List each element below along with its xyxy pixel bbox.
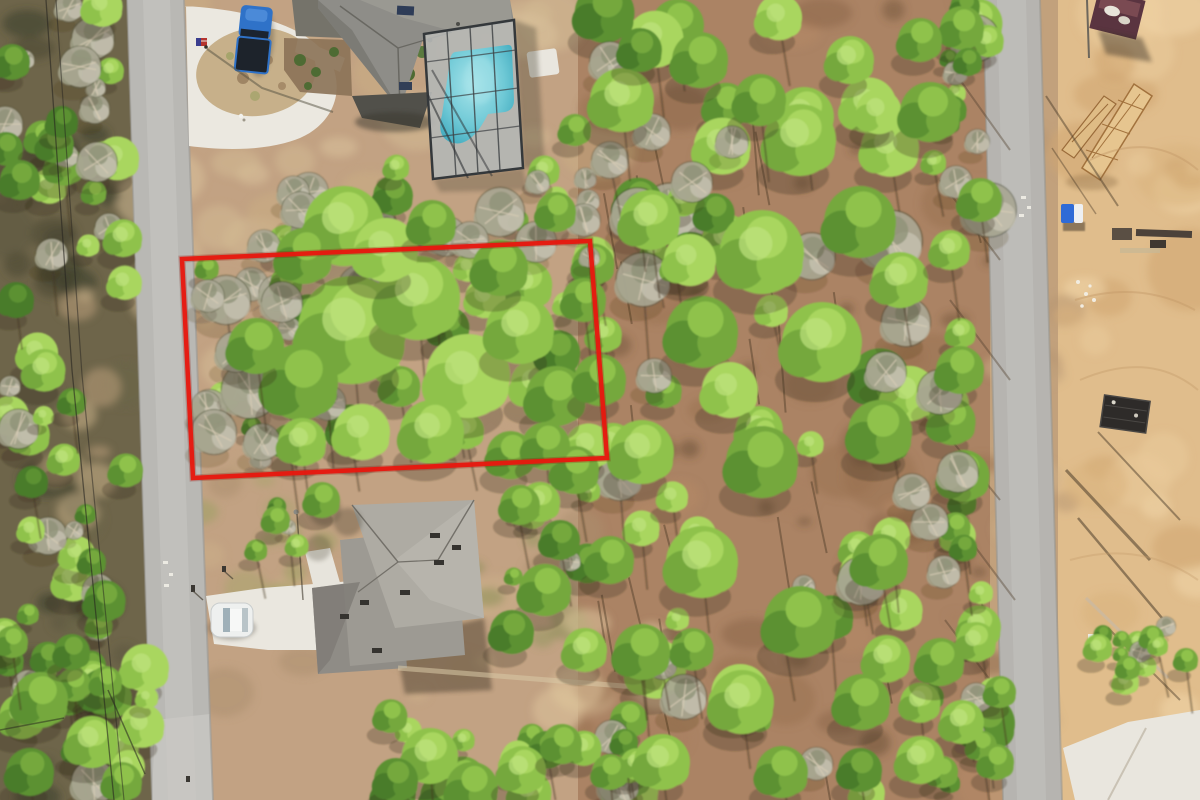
canopy-highlight bbox=[767, 4, 785, 22]
tree-shadow bbox=[498, 585, 516, 595]
canopy-highlight bbox=[457, 733, 466, 742]
tree-canopy bbox=[462, 766, 488, 792]
tree-canopy bbox=[603, 757, 621, 775]
tree-canopy bbox=[918, 87, 948, 117]
tree-canopy bbox=[706, 196, 726, 216]
canopy-highlight bbox=[501, 310, 528, 337]
tree-canopy bbox=[552, 523, 572, 543]
tree-canopy bbox=[569, 116, 585, 132]
canopy-highlight bbox=[885, 263, 907, 285]
tree-canopy bbox=[869, 538, 897, 566]
terrain-patch bbox=[1064, 277, 1106, 299]
tree-canopy bbox=[544, 371, 574, 401]
tree-canopy bbox=[119, 456, 136, 473]
island-grass bbox=[226, 52, 234, 60]
debris bbox=[1088, 284, 1091, 287]
tree-canopy bbox=[315, 485, 333, 503]
tree-canopy bbox=[12, 163, 32, 183]
canopy-highlight bbox=[724, 683, 750, 709]
canopy-highlight bbox=[509, 756, 528, 775]
tree-canopy bbox=[851, 678, 879, 706]
skylight bbox=[397, 6, 414, 16]
canopy-highlight bbox=[33, 358, 50, 375]
shrub bbox=[311, 67, 321, 77]
roof-vent bbox=[360, 600, 369, 605]
car-windshield bbox=[223, 608, 230, 632]
tree-canopy bbox=[950, 350, 974, 374]
road-paint-mark bbox=[1019, 214, 1024, 217]
pool-highlight bbox=[464, 56, 496, 104]
car-rear-window bbox=[242, 608, 248, 632]
tree-shadow-on-roof bbox=[305, 535, 331, 561]
tree-canopy bbox=[958, 537, 971, 550]
tree-canopy bbox=[384, 702, 401, 719]
terrain-patch bbox=[882, 0, 905, 21]
debris bbox=[1092, 298, 1096, 302]
skylight bbox=[399, 82, 412, 90]
tree-canopy bbox=[994, 678, 1010, 694]
canopy-highlight bbox=[953, 324, 965, 336]
shrub bbox=[304, 82, 312, 90]
canopy-highlight bbox=[632, 518, 646, 532]
roof-vent bbox=[434, 560, 444, 565]
tree-canopy bbox=[689, 36, 717, 64]
tree-canopy bbox=[9, 285, 27, 303]
tree-canopy bbox=[510, 569, 519, 578]
flagpole bbox=[204, 45, 208, 49]
road-paint-mark bbox=[1027, 206, 1031, 209]
tree-canopy bbox=[688, 301, 724, 337]
canopy-highlight bbox=[103, 63, 114, 74]
canopy-highlight bbox=[78, 726, 99, 747]
roof-vent bbox=[400, 590, 410, 595]
tree-canopy bbox=[911, 21, 933, 43]
tree-canopy bbox=[512, 488, 532, 508]
porta-body bbox=[1061, 204, 1074, 223]
terrain-patch bbox=[1127, 153, 1153, 177]
canopy-highlight bbox=[289, 428, 308, 447]
terrain-patch bbox=[3, 10, 51, 38]
road-paint-mark bbox=[1021, 196, 1026, 199]
canopy-highlight bbox=[682, 540, 711, 569]
tree-canopy bbox=[748, 431, 784, 467]
shrub bbox=[329, 47, 339, 57]
lumber-stack bbox=[1150, 240, 1166, 248]
tree-shadow bbox=[1141, 655, 1161, 666]
porta-shadow bbox=[1063, 222, 1085, 231]
truck-bed bbox=[235, 36, 271, 73]
terrain-patch bbox=[1054, 306, 1081, 325]
tree-canopy bbox=[86, 550, 100, 564]
tree-canopy bbox=[684, 631, 705, 652]
canopy-highlight bbox=[647, 745, 669, 767]
dead-brush bbox=[577, 206, 593, 222]
tree-canopy bbox=[619, 731, 633, 745]
tree-canopy bbox=[114, 765, 134, 785]
car-roof bbox=[230, 609, 242, 631]
pool-enclosure bbox=[424, 20, 545, 192]
tree-canopy bbox=[1181, 650, 1193, 662]
terrain-patch bbox=[320, 137, 358, 158]
tree-canopy bbox=[1118, 632, 1126, 640]
tree-canopy bbox=[5, 47, 23, 65]
tree-canopy bbox=[548, 195, 568, 215]
lumber-stack bbox=[1112, 228, 1132, 240]
canopy-highlight bbox=[445, 351, 479, 385]
mailbox bbox=[191, 585, 195, 592]
canopy-highlight bbox=[322, 202, 354, 234]
canopy-highlight bbox=[414, 413, 440, 439]
shrub bbox=[294, 54, 306, 66]
canopy-highlight bbox=[800, 318, 832, 350]
tree-canopy bbox=[1123, 658, 1135, 670]
terrain-patch bbox=[4, 252, 31, 277]
tree-canopy bbox=[786, 591, 822, 627]
tree-canopy bbox=[1118, 648, 1125, 655]
canopy-highlight bbox=[38, 410, 46, 418]
truck-roof bbox=[245, 8, 268, 22]
road-paint-mark bbox=[164, 584, 169, 587]
canopy-highlight bbox=[347, 415, 369, 437]
tree-canopy bbox=[953, 9, 975, 31]
canopy-highlight bbox=[415, 739, 437, 761]
tree-canopy bbox=[245, 322, 273, 350]
debris bbox=[1084, 292, 1088, 296]
terrain-patch bbox=[971, 567, 987, 576]
tree-canopy bbox=[6, 628, 22, 644]
canopy-highlight bbox=[389, 160, 399, 170]
terrain-patch bbox=[76, 288, 94, 301]
canopy-highlight bbox=[322, 298, 365, 341]
trailer-body bbox=[1100, 395, 1150, 433]
tree-canopy bbox=[270, 508, 284, 522]
roof-vent bbox=[372, 648, 382, 653]
tree-canopy bbox=[24, 605, 35, 616]
tree-canopy bbox=[285, 350, 323, 388]
tree-shadow bbox=[58, 539, 76, 549]
canopy-highlight bbox=[291, 539, 300, 548]
tree-canopy bbox=[950, 515, 965, 530]
terrain-patch bbox=[1080, 326, 1111, 356]
tree-canopy bbox=[772, 750, 798, 776]
porta-potty bbox=[1061, 204, 1085, 231]
canopy-highlight bbox=[116, 273, 130, 287]
roof-vent bbox=[452, 545, 461, 550]
tree-canopy bbox=[387, 761, 409, 783]
tree-canopy bbox=[750, 78, 776, 104]
tree-canopy bbox=[631, 31, 653, 53]
canopy-highlight bbox=[676, 244, 697, 265]
canopy-highlight bbox=[624, 433, 650, 459]
tree-canopy bbox=[503, 613, 525, 635]
mailbox bbox=[186, 776, 190, 782]
lumber-pale bbox=[1120, 248, 1160, 253]
canopy-highlight bbox=[573, 637, 591, 655]
island-grass bbox=[250, 91, 260, 101]
bird-shadow bbox=[243, 119, 246, 122]
canopy-highlight bbox=[975, 586, 984, 595]
roof-vent bbox=[340, 614, 349, 619]
tree-canopy bbox=[422, 204, 446, 228]
roof-vent bbox=[430, 533, 440, 538]
debris bbox=[1080, 304, 1084, 308]
tree-canopy bbox=[971, 181, 993, 203]
canopy-highlight bbox=[715, 373, 737, 395]
tree-canopy bbox=[554, 727, 574, 747]
canopy-highlight bbox=[804, 436, 814, 446]
canopy-highlight bbox=[907, 746, 926, 765]
tree-canopy bbox=[621, 704, 640, 723]
canopy-highlight bbox=[664, 488, 676, 500]
island-mulch bbox=[278, 82, 286, 90]
canopy-highlight bbox=[24, 522, 35, 533]
canopy-highlight bbox=[780, 118, 809, 147]
terrain-patch bbox=[211, 149, 260, 178]
canopy-highlight bbox=[1153, 640, 1161, 648]
bird bbox=[239, 114, 243, 118]
canopy-highlight bbox=[1090, 640, 1101, 651]
tree-canopy bbox=[66, 390, 80, 404]
canopy-highlight bbox=[82, 239, 91, 248]
tree-canopy bbox=[535, 568, 561, 594]
terrain-patch bbox=[679, 440, 699, 458]
tree-canopy bbox=[851, 751, 873, 773]
tree-canopy bbox=[97, 583, 118, 604]
canopy-highlight bbox=[634, 202, 658, 226]
tree-canopy bbox=[846, 191, 882, 227]
tree-canopy bbox=[962, 50, 976, 64]
aerial-photo-canvas bbox=[0, 0, 1200, 800]
canopy-highlight bbox=[950, 709, 968, 727]
tree-canopy bbox=[29, 676, 57, 704]
tree-canopy bbox=[600, 540, 624, 564]
canopy-highlight bbox=[141, 691, 150, 700]
canopy-highlight bbox=[113, 227, 128, 242]
canopy-highlight bbox=[965, 630, 981, 646]
flag-stripes bbox=[201, 38, 207, 46]
tree-canopy bbox=[26, 468, 42, 484]
canopy-highlight bbox=[939, 238, 955, 254]
roof-vent bbox=[456, 22, 460, 26]
construction-trailer-mid bbox=[1100, 395, 1150, 433]
tree-canopy bbox=[65, 637, 83, 655]
eave-shadow bbox=[355, 112, 435, 132]
flag-canton bbox=[196, 38, 201, 46]
canopy-highlight bbox=[837, 46, 856, 65]
tree-canopy bbox=[20, 752, 44, 776]
road-paint-mark bbox=[169, 573, 173, 576]
white-car bbox=[208, 603, 256, 640]
aerial-photo bbox=[0, 0, 1200, 800]
tree-shadow bbox=[27, 424, 47, 435]
tree-shadow-on-roof bbox=[334, 508, 362, 536]
terrain-patch bbox=[797, 517, 811, 525]
debris bbox=[1076, 280, 1080, 284]
terrain-patch bbox=[1082, 592, 1140, 634]
tree-canopy bbox=[867, 405, 899, 437]
canopy-highlight bbox=[873, 645, 892, 664]
canopy-highlight bbox=[866, 98, 884, 116]
terrain-patch bbox=[87, 446, 111, 458]
porta-lid bbox=[1074, 204, 1083, 223]
tree-canopy bbox=[631, 628, 659, 656]
terrain-patch bbox=[195, 205, 244, 250]
canopy-highlight bbox=[132, 653, 151, 672]
tree-canopy bbox=[989, 747, 1007, 765]
canopy-highlight bbox=[739, 227, 773, 261]
tree-canopy bbox=[536, 426, 560, 450]
tree-canopy bbox=[82, 506, 92, 516]
canopy-highlight bbox=[55, 450, 68, 463]
tree-canopy bbox=[930, 642, 954, 666]
road-paint-mark bbox=[163, 561, 168, 564]
